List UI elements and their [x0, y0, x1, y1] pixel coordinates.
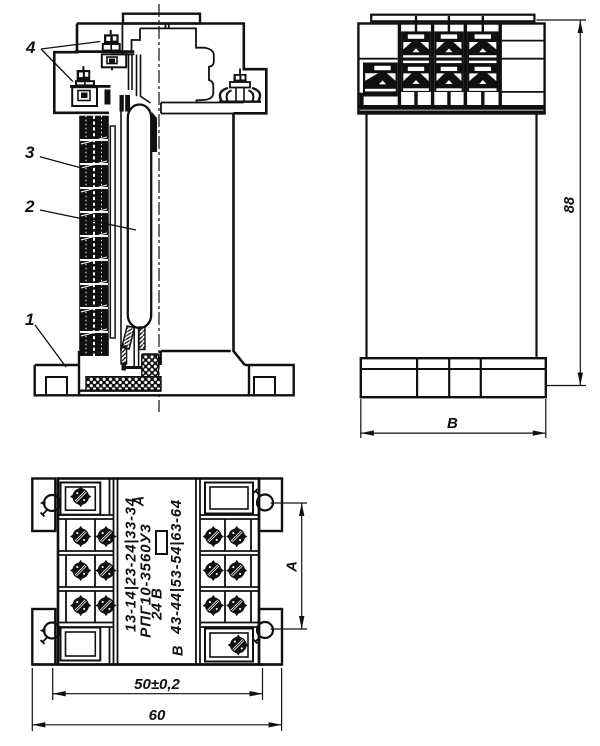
svg-text:В: В [447, 415, 458, 432]
svg-text:4: 4 [25, 38, 36, 57]
svg-text:1: 1 [25, 310, 34, 329]
svg-text:88: 88 [562, 196, 578, 213]
svg-text:А: А [132, 496, 148, 507]
svg-text:А: А [284, 561, 301, 573]
svg-text:24 В: 24 В [149, 588, 166, 621]
svg-text:3: 3 [25, 143, 35, 162]
svg-text:2: 2 [24, 197, 35, 216]
svg-text:43-44|53-54|63-64: 43-44|53-54|63-64 [169, 499, 185, 635]
svg-text:В: В [170, 645, 186, 655]
svg-text:60: 60 [149, 707, 166, 724]
svg-text:50±0,2: 50±0,2 [134, 676, 180, 693]
